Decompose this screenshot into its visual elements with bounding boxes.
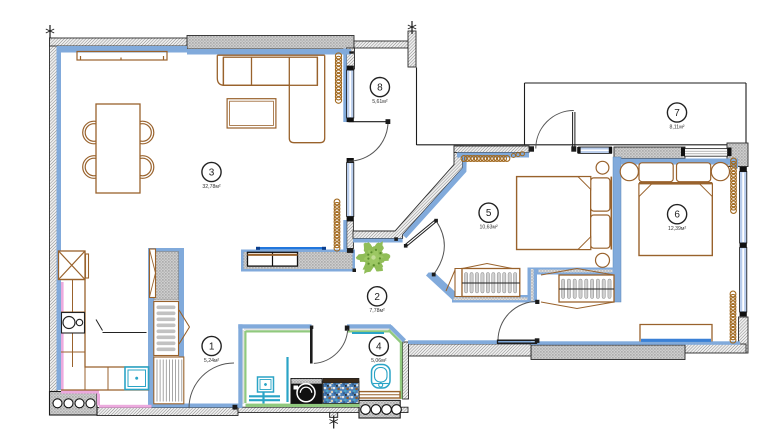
svg-text:5,06м²: 5,06м² xyxy=(371,358,387,364)
svg-text:7: 7 xyxy=(674,108,680,119)
svg-text:8: 8 xyxy=(377,83,383,94)
svg-text:10,63м²: 10,63м² xyxy=(479,225,498,231)
svg-text:12,39м²: 12,39м² xyxy=(668,226,687,232)
svg-text:4: 4 xyxy=(376,342,382,353)
svg-text:6: 6 xyxy=(674,210,680,221)
svg-text:2: 2 xyxy=(374,292,380,303)
svg-text:7,78м²: 7,78м² xyxy=(369,308,385,314)
svg-text:1: 1 xyxy=(209,342,215,353)
svg-text:3: 3 xyxy=(209,168,215,179)
svg-text:5,61м²: 5,61м² xyxy=(372,99,388,105)
svg-text:32,78м²: 32,78м² xyxy=(202,184,221,190)
svg-text:5,24м²: 5,24м² xyxy=(204,358,220,364)
svg-text:5: 5 xyxy=(486,208,492,219)
svg-text:8,11м²: 8,11м² xyxy=(669,124,684,130)
